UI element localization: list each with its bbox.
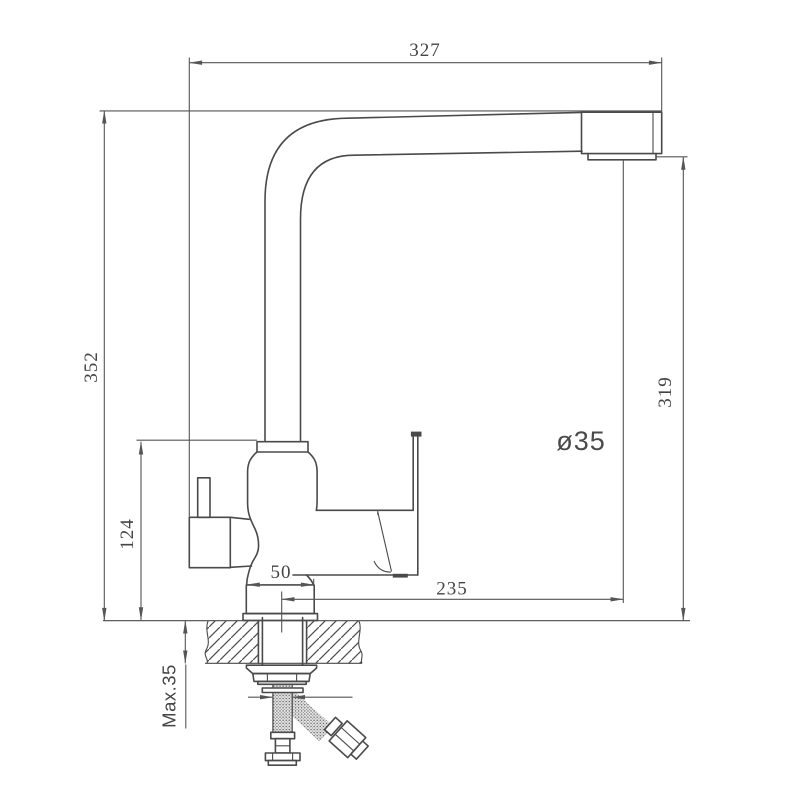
angled-hose-fitting	[321, 713, 371, 762]
spout-outer-edge	[265, 112, 582, 441]
dim-base-width: 50	[247, 562, 314, 586]
valve-neck-top	[230, 517, 249, 519]
aerator	[588, 154, 656, 160]
dim-overall-height: 352	[81, 111, 662, 621]
fitting-flare-nut	[265, 753, 300, 761]
dim-label-counter-thickness: Max.35	[159, 664, 180, 728]
dim-counter-thickness: Max.35	[159, 621, 186, 729]
fitting-collar	[271, 732, 295, 738]
dim-label-spout-width: 327	[409, 40, 441, 61]
dim-label-hole-diameter: ø35	[556, 426, 606, 456]
body-right-profile-upper	[308, 452, 317, 510]
mounting-hex-nut	[253, 674, 310, 682]
dim-spout-reach: 235	[282, 160, 624, 633]
countertop-hatch-right	[307, 621, 363, 663]
stud-flange	[262, 688, 303, 693]
valve-neck-bottom	[230, 566, 251, 567]
spout-inner-edge	[301, 151, 583, 442]
mounting-washer	[258, 681, 306, 684]
countertop-hatch-left	[205, 621, 258, 663]
dim-body-height: 124	[117, 440, 257, 620]
faucet-technical-drawing: 327 352 319 124 50	[0, 0, 800, 800]
mounting-bracket	[246, 665, 316, 673]
right-handle	[293, 432, 422, 578]
body-right-profile-lower	[307, 575, 314, 585]
handle-foot-pad	[393, 574, 408, 578]
dimensions: 327 352 319 124 50	[81, 40, 688, 729]
fitting-tip	[268, 761, 296, 766]
left-valve-box	[189, 517, 230, 567]
dim-label-outlet-height: 319	[655, 376, 676, 408]
straight-hose-fitting	[265, 732, 300, 765]
handle-arc-detail	[374, 561, 391, 572]
handle-slant-line	[378, 512, 392, 572]
pipe-flange	[257, 442, 308, 452]
dim-label-base-width: 50	[271, 562, 292, 583]
handle-lever-cap	[411, 432, 422, 437]
dim-label-overall-height: 352	[81, 351, 102, 383]
countertop	[103, 621, 690, 664]
faucet-outline	[189, 112, 661, 620]
dim-label-body-height: 124	[117, 518, 138, 550]
supply-hoses	[262, 684, 371, 765]
left-valve	[189, 478, 251, 568]
spout-head	[582, 112, 662, 153]
drawing-canvas: 327 352 319 124 50	[0, 0, 800, 800]
base-plate	[243, 614, 318, 621]
dim-label-spout-reach: 235	[436, 579, 468, 600]
left-lever-stem	[198, 478, 210, 518]
dim-outlet-height: 319	[655, 157, 688, 621]
